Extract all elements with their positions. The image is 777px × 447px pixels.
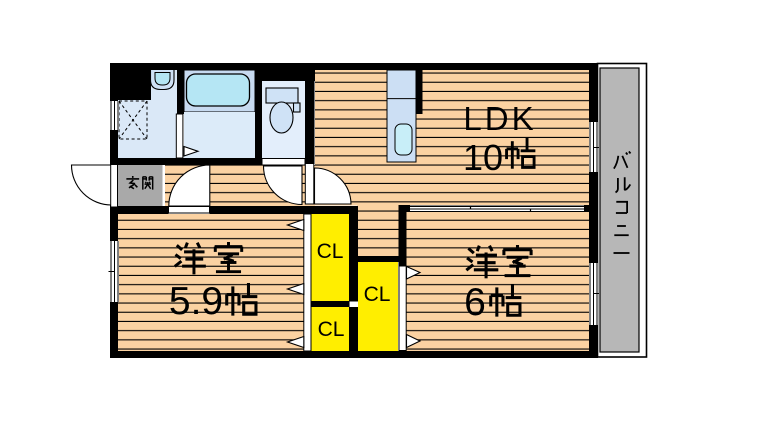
svg-text:LDK: LDK [463,100,536,137]
svg-text:CL: CL [364,283,391,306]
svg-text:CL: CL [317,240,344,263]
svg-text:6: 6 [464,281,486,324]
svg-text:5.9: 5.9 [169,280,223,323]
svg-text:CL: CL [318,318,345,341]
svg-text:10: 10 [463,137,503,178]
